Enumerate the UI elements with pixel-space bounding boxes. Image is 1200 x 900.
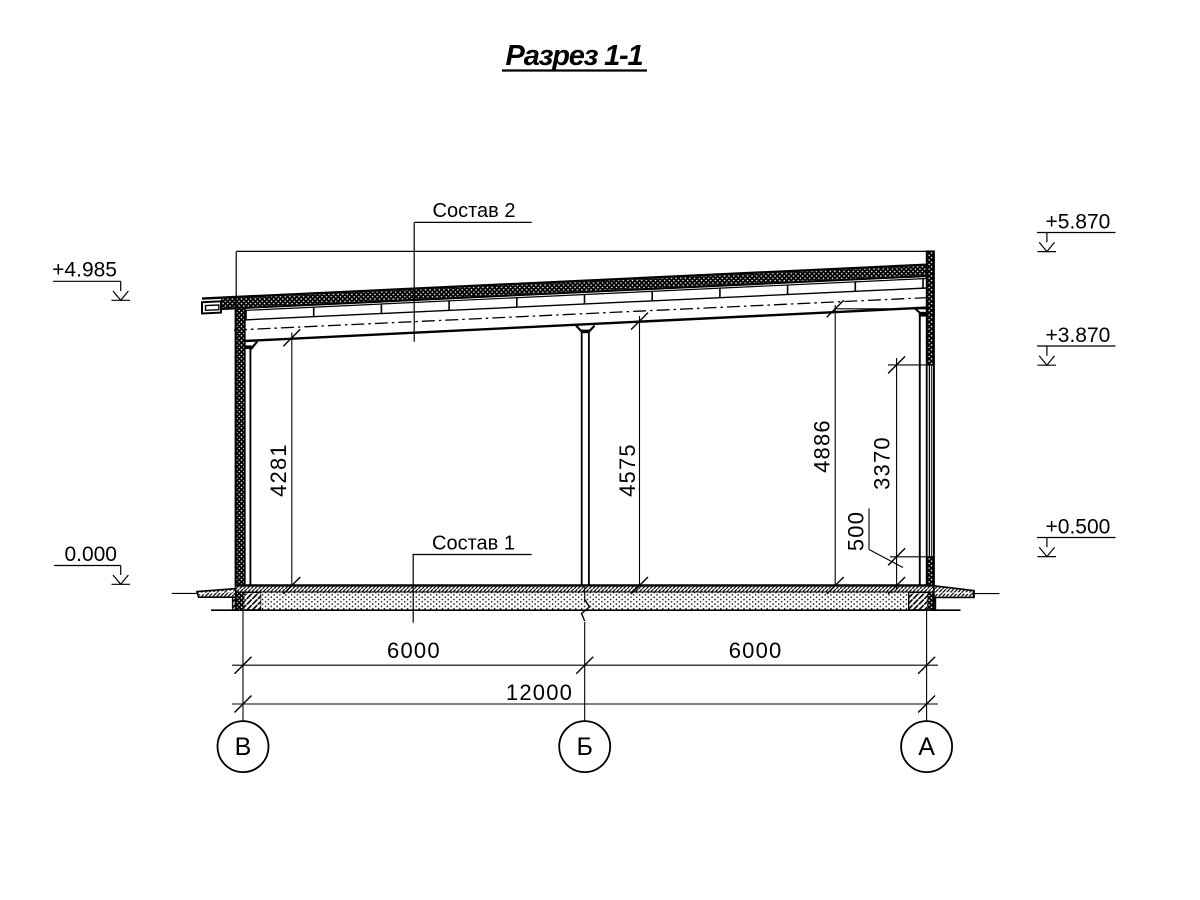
svg-text:0.000: 0.000 [64, 543, 117, 566]
svg-text:Б: Б [576, 733, 592, 761]
svg-text:Состав 1: Состав 1 [432, 532, 515, 554]
svg-text:В: В [235, 733, 252, 761]
svg-text:+4.985: +4.985 [52, 259, 117, 282]
svg-text:4575: 4575 [615, 443, 640, 497]
svg-text:+5.870: +5.870 [1046, 211, 1111, 234]
svg-text:3370: 3370 [870, 436, 895, 490]
svg-text:4281: 4281 [266, 443, 291, 497]
svg-text:500: 500 [844, 511, 869, 551]
svg-text:12000: 12000 [506, 680, 573, 705]
svg-text:Состав 2: Состав 2 [433, 200, 516, 222]
svg-text:А: А [918, 733, 935, 761]
svg-text:6000: 6000 [387, 638, 441, 663]
svg-text:Разрез 1-1: Разрез 1-1 [506, 40, 643, 72]
svg-text:+0.500: +0.500 [1046, 516, 1111, 539]
svg-text:+3.870: +3.870 [1046, 324, 1111, 347]
svg-text:4886: 4886 [810, 419, 835, 473]
svg-text:6000: 6000 [729, 638, 783, 663]
